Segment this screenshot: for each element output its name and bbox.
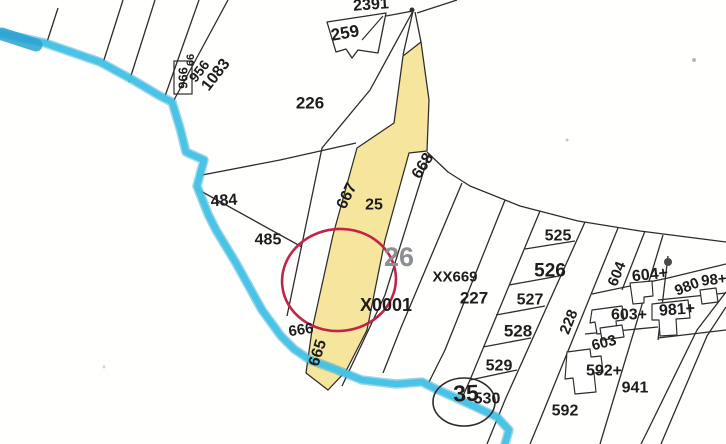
apex-flag-link-line (386, 11, 413, 16)
parcel-label-941: 941 (622, 380, 649, 397)
parcel-label-2391: 2391 (353, 0, 390, 15)
parcel-label-525: 525 (545, 228, 572, 245)
parcel-259-inner-line (362, 16, 383, 40)
parcel-label-259: 259 (329, 21, 360, 45)
parcel-label-981plus: 981+ (658, 300, 695, 319)
parcel-label-529: 529 (486, 358, 513, 375)
parcel-label-526: 526 (534, 261, 566, 282)
parcel-label-35: 35 (453, 380, 480, 407)
parcel-label-604plus: 604+ (631, 265, 669, 286)
building-980-rect (700, 288, 718, 304)
field-line-1 (47, 8, 58, 42)
parcel-label-528: 528 (504, 322, 532, 341)
parcel-label-485: 485 (255, 232, 282, 249)
parcel-label-XX669: XX669 (432, 269, 477, 286)
parcel-label-666: 666 (287, 320, 314, 340)
scan-dot-1 (566, 139, 569, 142)
road-parcel-25-highlight (306, 42, 429, 390)
field-line-2 (103, 0, 123, 63)
apex-mark (410, 8, 415, 13)
parcel-label-604: 604 (604, 259, 629, 289)
field-line-3 (129, 0, 155, 82)
apex-left-line (403, 11, 413, 55)
parcel-label-X0001: X0001 (360, 295, 412, 315)
parcel-226-south-line (197, 143, 356, 176)
parcel-label-592: 592 (552, 403, 579, 420)
apex-northeast-line (417, 0, 457, 13)
scan-dot-2 (692, 58, 696, 62)
parcel-label-226: 226 (296, 94, 324, 113)
parcel-label-98plus: 98+ (700, 270, 726, 290)
parcel-label-668: 668 (409, 150, 438, 182)
cadastral-map-canvas[interactable]: 23912592269666695610834844856672566826X0… (0, 0, 726, 444)
parcel-label-592plus: 592+ (586, 363, 622, 380)
parcel-label-603plus: 603+ (611, 307, 647, 324)
parcel-label-603: 603 (590, 332, 618, 355)
parcel-label-26: 26 (384, 242, 414, 272)
parcel-label-228: 228 (556, 307, 581, 337)
map-viewport: 23912592269666695610834844856672566826X0… (0, 0, 726, 444)
parcel-label-484: 484 (210, 192, 238, 211)
scan-dot-3 (103, 366, 106, 369)
parcel-label-25: 25 (365, 197, 383, 214)
parcel-label-527: 527 (517, 292, 544, 309)
main-north-boundary (427, 152, 726, 242)
apex-right-line (415, 12, 421, 42)
parcel-label-227: 227 (460, 289, 488, 308)
